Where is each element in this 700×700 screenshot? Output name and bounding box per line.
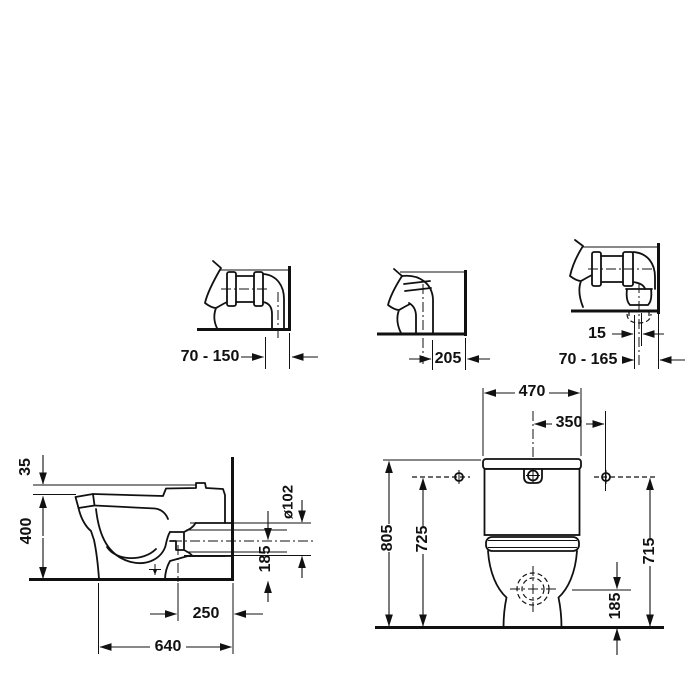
dim-front-right-height-label: 715 [642,538,658,565]
dim-front-outlet-height-label: 185 [608,593,624,620]
dim-detail3-wall-range-label: 70 - 165 [559,352,618,368]
toilet-dimension-drawing [0,0,700,700]
detail-outlet-elbow-floor [570,240,685,369]
dim-side-outlet-height-label: 185 [258,546,274,573]
dim-side-outlet-wall-label: 250 [193,606,220,622]
dim-detail3-offset-label: 15 [588,326,606,342]
dim-side-seat-lip-label: 35 [18,458,34,476]
dim-side-outlet-diameter-label: ø102 [281,485,296,519]
dim-side-depth-label: 640 [155,639,182,655]
detail-outlet-vertical [377,269,490,370]
dim-front-width-label: 470 [519,384,546,400]
dim-front-left-height-label: 725 [415,526,431,553]
technical-drawing-canvas: 70 - 150 205 15 70 - 165 35 400 ø102 185… [0,0,700,700]
dim-detail1-wall-range-label: 70 - 150 [181,349,240,365]
dim-side-height-label: 400 [19,518,35,545]
dim-front-hole-spacing-label: 350 [556,415,583,431]
dim-front-total-height-label: 805 [380,525,396,552]
dim-detail2-wall-label: 205 [435,351,462,367]
